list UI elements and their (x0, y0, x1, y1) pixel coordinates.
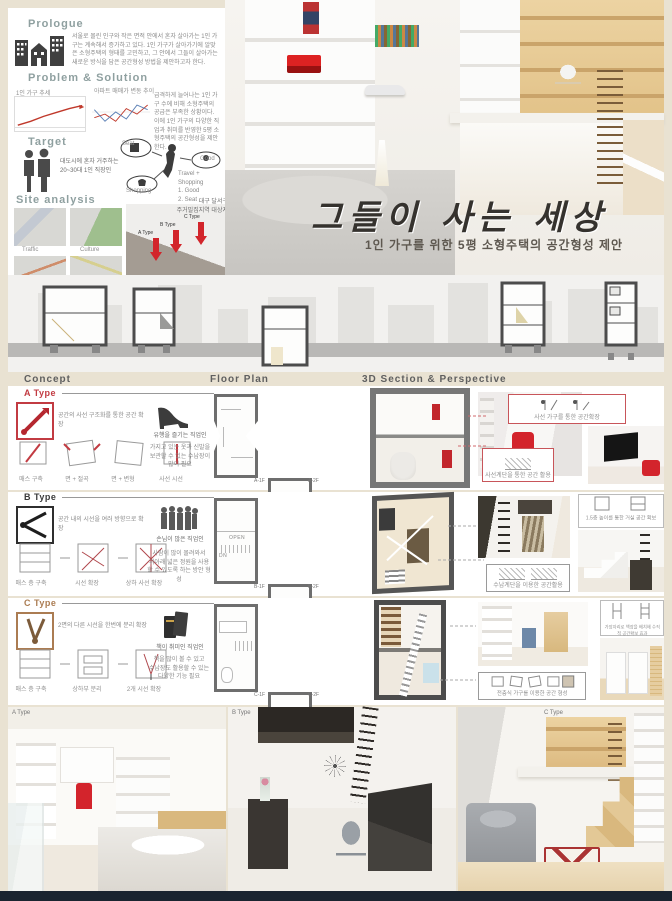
target-desc: 대도시에 혼자 거주하는 20~30대 1인 직장인 (60, 158, 122, 176)
bottom-render-c-label: C Type (544, 710, 563, 716)
c-step-3: 2개 시선 확장 (122, 684, 166, 693)
column-header-floor-plan: Floor Plan (210, 374, 269, 385)
b-step-2: 시선 확장 (70, 578, 104, 587)
row-b-type: B Type 공간 내의 시선을 여러 방향으로 확장 매스 층 구축 시선 확… (8, 492, 664, 596)
a-callout-1-caption: 사선 가구를 통한 공간확장 (534, 412, 600, 421)
map-traffic-label: Traffic (22, 247, 38, 253)
bottom-render-b: B Type (228, 707, 456, 891)
a-render-2 (588, 426, 664, 484)
a-type-label: A Type (24, 388, 56, 398)
bottom-render-a-label: A Type (12, 710, 30, 716)
a-step-4: 사선 시선 (152, 474, 190, 483)
a-render-red-sofa (642, 460, 660, 476)
c-concept-icon (16, 612, 54, 650)
c-callout-1-diagram (601, 601, 663, 621)
skyline-silhouette (8, 275, 664, 372)
a-step-1: 매스 구축 (14, 474, 48, 483)
b-persona-name: 손님이 많은 직업인 (150, 536, 210, 545)
loft-ladder (597, 70, 623, 190)
target-node-good: Good (200, 156, 215, 162)
c-callout-1-caption: 가장자리로 책장을 배치해 수직적 공간확보 효과 (603, 624, 661, 637)
bottom-accent-strip (0, 891, 672, 901)
c-concept-note: 2면의 다른 시선을 한번에 분리 확장 (58, 622, 148, 631)
b-dark-cabinet (248, 799, 288, 869)
c-3d-bookwall (381, 607, 401, 647)
c-type-header: C Type (24, 598, 214, 608)
row-c-type: C Type 2면의 다른 시선을 한번에 분리 확장 매스 층 구축 상하부 … (8, 598, 664, 705)
b-callout-lines (418, 516, 578, 576)
hero-render: 그들이 사는 세상 1인 가구를 위한 5평 소형주택의 공간형성 제안 (225, 0, 664, 275)
target-node-seat: Seat (122, 141, 134, 147)
b-office-chair (336, 817, 366, 877)
poster-board: { "prologue": { "title": "Prologue", "te… (0, 0, 672, 901)
chart-singles-trend (14, 96, 86, 132)
b-desk-dark (368, 783, 432, 871)
a-concept-note: 공간의 사선 구조화를 통한 공간 확장 (58, 412, 148, 429)
prologue-title: Prologue (28, 18, 84, 30)
c-wood-floor (458, 862, 664, 891)
c-step-1: 매스 층 구축 (12, 684, 50, 693)
b-concept-note: 공간 내의 시선을 여러 방향으로 확장 (58, 516, 148, 533)
a-plan-1f (214, 394, 258, 478)
left-info-panel: Prologue 서울로 몰린 인구와 작은 면적 안에서 혼자 살아가는 1인… (8, 8, 225, 275)
a-red-chair (76, 783, 92, 809)
bottom-render-b-label: B Type (232, 710, 251, 716)
map-active-area (14, 256, 66, 276)
toy-robot (303, 2, 319, 34)
b-type-label: B Type (24, 492, 56, 502)
prologue-text: 서울로 몰린 인구와 작은 면적 안에서 혼자 살아가는 1인 가구는 계속해서… (72, 33, 220, 68)
a-callout-lines (308, 406, 488, 466)
column-header-3d-section: 3D Section & Perspective (362, 374, 507, 385)
target-title: Target (28, 136, 67, 148)
hero-bookshelf-mid (460, 0, 520, 120)
axon-label-a: A Type (138, 230, 153, 236)
c-step-2: 상하부 분리 (68, 684, 106, 693)
b-wall-clock (324, 755, 346, 777)
high-heel-icon (156, 404, 190, 430)
c-render-wardrobe-1 (606, 652, 626, 694)
a-persona-name: 유행을 즐기는 직업인 (150, 432, 210, 441)
a-step-2: 면 + 절곡 (60, 474, 94, 483)
a-closet (60, 747, 114, 783)
site-analysis-title: Site analysis (16, 194, 96, 206)
c-loft-edge (518, 767, 638, 777)
b-callout-1-caption: 1.5층 높이를 통한 거실 공간 확보 (585, 514, 656, 522)
a-concept-icon (16, 402, 54, 440)
b-plan-1f: OPEN DN (214, 498, 258, 584)
a-type-header: A Type (24, 388, 214, 398)
buildings-icon (14, 34, 66, 66)
b-plan-open: OPEN (229, 535, 245, 541)
map-traffic (14, 208, 66, 246)
b-callout-1-diagram (579, 495, 663, 513)
c-render-wardrobe-2 (628, 652, 648, 694)
c-callout-1: 가장자리로 책장을 배치해 수직적 공간확보 효과 (600, 600, 664, 636)
a-bed-headboard (158, 811, 226, 829)
b-concept-icon (16, 506, 54, 544)
c-wood-stairs (586, 777, 634, 847)
b-type-header: B Type (24, 492, 214, 502)
a-persona-desc: 가지고 있는 옷과 신발을 보관할 수 있는 수납장이 많이 필요 (148, 444, 212, 470)
crowd-icon (158, 506, 198, 532)
people-icon (20, 148, 54, 194)
b-step-1: 매스 층 구축 (12, 578, 50, 587)
c-type-label: C Type (24, 598, 56, 608)
toy-truck (287, 55, 321, 73)
c-render-2 (600, 638, 664, 700)
b-plan-dn: DN (219, 553, 227, 559)
c-render-wood-shelf (650, 646, 662, 696)
city-sections-band (8, 275, 664, 372)
a-callout-2: 사선계단을 통한 공간 활용 (482, 448, 554, 482)
a-callout-2-caption: 사선계단을 통한 공간 활용 (485, 470, 551, 479)
b-render-2 (578, 530, 664, 592)
c-plan-1f (214, 604, 258, 692)
problem-solution-title: Problem & Solution (28, 72, 148, 84)
floor-lamp (375, 140, 389, 186)
books-shelf-1 (375, 25, 419, 47)
column-header-concept: Concept (24, 374, 71, 385)
bottom-render-a: A Type (8, 707, 226, 891)
a-glass-railing (8, 803, 44, 891)
b-flower-vase (260, 777, 270, 801)
row-a-type: A Type 공간의 사선 구조화를 통한 공간 확장 매스 구축 면 + 절곡… (8, 386, 664, 490)
b-persona-desc: 사람이 많이 몰려와서 위아래 넓은 정원을 사용 할 수 있도록 하는 방안 … (146, 550, 212, 585)
hero-wood-loft (520, 0, 664, 120)
c-bookshelf-right (634, 713, 664, 843)
site-note: 대구 달서구 주거밀집지역 대상지 (176, 198, 228, 216)
c-callout-2-caption: 전층식 가구를 이용한 공간 형성 (497, 688, 568, 696)
stairs-diagram-a (505, 458, 531, 470)
a-callout-1: 사선 가구를 통한 공간확장 (508, 394, 626, 424)
a-callout-1-diagram (537, 398, 597, 412)
b-render-loft (518, 500, 552, 514)
b-callout-1: 1.5층 높이를 통한 거실 공간 확보 (578, 494, 664, 528)
poster-subtitle: 1인 가구를 위한 5평 소형주택의 공간형성 제안 (365, 236, 655, 253)
b-callout-2-caption: 수납계단을 이용한 공간활용 (493, 580, 563, 589)
map-culture (70, 208, 122, 246)
a-render-tv (604, 432, 638, 462)
c-callout-lines (416, 618, 576, 688)
loft-chair (555, 62, 581, 96)
toy-car (365, 85, 405, 95)
b-render-white-stairs (584, 552, 628, 578)
books-icon (160, 610, 194, 640)
b-render-dark-shelf (630, 560, 652, 590)
bottom-render-c: C Type (458, 707, 664, 891)
map-commerce (70, 256, 122, 276)
c-persona-name: 책이 취미인 직업인 (150, 644, 210, 653)
b-loft-bed-dark (258, 707, 354, 743)
target-node-shopping: Shopping (126, 188, 151, 194)
map-culture-label: Culture (80, 247, 99, 253)
chart-apartment-price (92, 94, 150, 130)
a-step-3: 면 + 변형 (106, 474, 140, 483)
axon-label-b: B Type (160, 222, 175, 228)
a-bed (98, 827, 226, 891)
c-persona-desc: 책을 많이 볼 수 있고 수납장도 활용할 수 있는 다양한 기능 필요 (146, 656, 212, 682)
poster-title: 그들이 사는 세상 (311, 190, 661, 239)
